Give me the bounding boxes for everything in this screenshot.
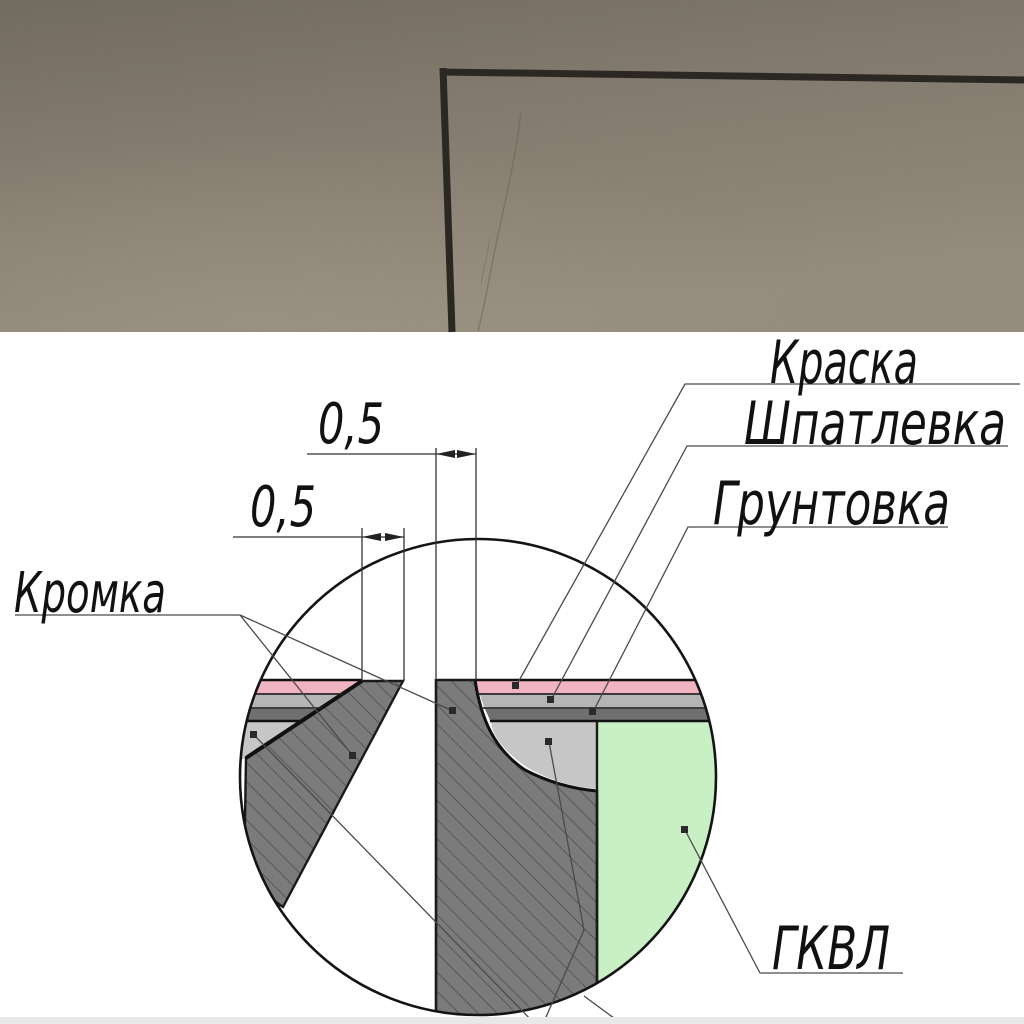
dimension-value-top: 0,5 (318, 392, 384, 457)
callout-primer-label: Грунтовка (713, 469, 950, 539)
screenshot-root: { "photo": { "colors": { "wall_top": "#7… (0, 0, 1024, 1024)
dot-filler-left (250, 731, 257, 738)
dot-gkvl (681, 826, 688, 833)
arrowhead-left (436, 450, 455, 458)
dot-edge-left (349, 752, 356, 759)
dot-primer (589, 708, 596, 715)
callout-putty-label: Шпатлевка (744, 389, 1006, 459)
dimension-value-bottom: 0,5 (250, 475, 316, 540)
callout-edge-label: Кромка (14, 561, 166, 626)
dot-filler-recess (545, 738, 552, 745)
dot-putty (547, 696, 554, 703)
arrowhead-right (385, 533, 404, 541)
photo-wall-corner (0, 0, 1024, 332)
drywall-joint-figure: 0,5 0,5 Краска Шпатлевка (0, 0, 1024, 1024)
arrowhead-right (457, 450, 476, 458)
callout-gkvl-label: ГКВЛ (772, 914, 890, 984)
footer-strip (0, 1017, 1024, 1024)
layer-primer-right (485, 709, 716, 720)
callout-paint-label: Краска (770, 328, 918, 398)
detail-view-interior (230, 680, 719, 1024)
dot-paint (512, 682, 519, 689)
arrowhead-left (362, 533, 381, 541)
board-core-gkvl (597, 722, 719, 1022)
dot-edge-right (449, 707, 456, 714)
